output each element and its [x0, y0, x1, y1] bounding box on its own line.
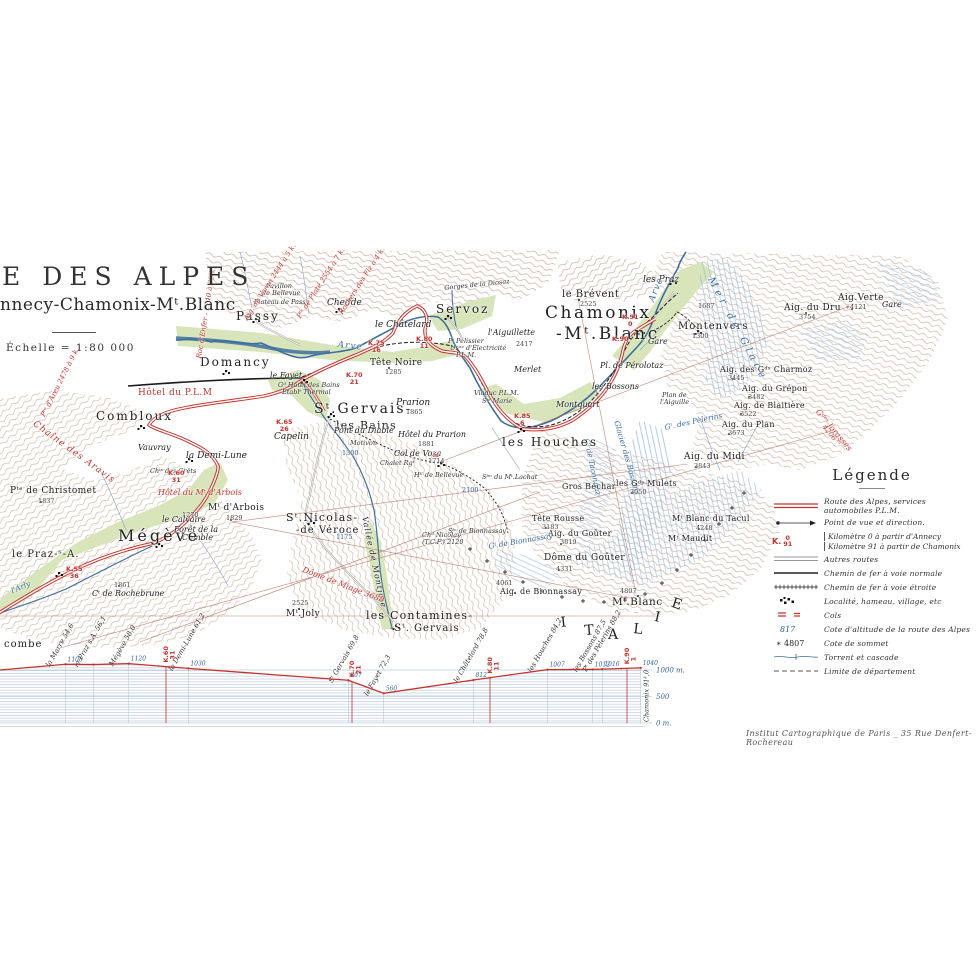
- legend-item: Chemin de fer à voie étroite: [772, 581, 972, 594]
- summit-dot: [578, 299, 580, 301]
- village-marker: [306, 381, 308, 383]
- summit-dot: [732, 378, 734, 380]
- village-marker: [308, 523, 310, 525]
- credit-line: Institut Cartographique de Paris _ 35 Ru…: [746, 729, 980, 747]
- legend-panel: Légende Route des Alpes, services automo…: [772, 466, 972, 679]
- map-title: E DES ALPES: [2, 264, 255, 290]
- village-marker: [140, 425, 142, 427]
- legend-road-symbol: [772, 553, 824, 565]
- village-marker: [700, 332, 702, 334]
- summit-dot: [748, 396, 750, 398]
- village-marker: [638, 333, 640, 335]
- village-marker: [450, 317, 452, 319]
- border-cross: [560, 595, 564, 599]
- village-marker: [445, 318, 447, 320]
- legend-item: Route des Alpes, services automobiles P.…: [772, 497, 972, 515]
- legend-item: Torrent et cascade: [772, 651, 972, 664]
- legend-label: Point de vue et direction.: [824, 518, 925, 527]
- village-marker: [523, 430, 525, 432]
- legend-item: Point de vue et direction.: [772, 517, 972, 530]
- village-marker: [328, 416, 330, 418]
- profile-elevation-label: 1007: [550, 662, 565, 669]
- village-marker: [191, 460, 193, 462]
- legend-label: Localité, hameau, village, etc: [824, 597, 942, 606]
- legend-label: Chemin de fer à voie normale: [824, 569, 942, 578]
- village-marker: [670, 283, 672, 285]
- village-marker: [156, 546, 158, 548]
- village-marker: [303, 379, 305, 381]
- profile-axis-label: 1000 m.: [656, 667, 685, 675]
- legend-label: Torrent et cascade: [824, 653, 899, 662]
- village-marker: [675, 282, 677, 284]
- profile-point: [347, 679, 349, 681]
- summit-dot: [514, 592, 516, 594]
- legend-label: Kilomètre 91 à partir de Chamonix: [824, 542, 961, 551]
- legend-label: Cote d'altitude de la route des Alpes: [824, 625, 970, 634]
- legend-col-symbol: [772, 609, 824, 621]
- village-marker: [643, 332, 645, 334]
- legend-torrent-symbol: [772, 651, 824, 663]
- village-marker: [640, 330, 642, 332]
- border-cross: [581, 599, 585, 603]
- summit-dot: [728, 433, 730, 435]
- village-marker: [520, 428, 522, 430]
- map-scale: Échelle = 1:80 000: [6, 343, 135, 354]
- village-marker: [301, 382, 303, 384]
- village-marker: [395, 625, 397, 627]
- legend-title: Légende: [772, 466, 972, 484]
- profile-point: [597, 668, 599, 670]
- legend-label: Cols: [824, 611, 841, 620]
- village-marker: [225, 370, 227, 372]
- profile-km-label: K.6031: [162, 646, 177, 663]
- village-marker: [258, 320, 260, 322]
- village-marker: [255, 318, 257, 320]
- legend-item: 817Cote d'altitude de la route des Alpes: [772, 623, 972, 636]
- village-marker: [158, 543, 160, 545]
- village-marker: [398, 627, 400, 629]
- village-marker: [447, 315, 449, 317]
- profile-elevation-label: 1016: [604, 661, 619, 668]
- legend-alt-symbol: 817: [772, 625, 824, 634]
- legend-item: ∗ 4807Cote de sommet: [772, 637, 972, 650]
- profile-axis-label: 0 m.: [656, 720, 672, 728]
- summit-dot: [631, 492, 633, 494]
- summit-dot: [118, 585, 120, 587]
- legend-item: Limite de département: [772, 665, 972, 678]
- legend-label: Chemin de fer à voie étroite: [824, 583, 936, 592]
- legend-item: Localité, hameau, village, etc: [772, 595, 972, 608]
- legend-rail-symbol: [772, 567, 824, 579]
- legend-item: Autres routes: [772, 553, 972, 566]
- profile-area: [0, 664, 641, 723]
- profile-km-label: K.8011: [486, 657, 501, 674]
- profile-point: [92, 663, 94, 665]
- village-marker: [56, 575, 58, 577]
- profile-km-label: K.7021: [348, 660, 363, 677]
- profile-point: [268, 674, 270, 676]
- summit-dot: [388, 367, 390, 369]
- village-marker: [223, 373, 225, 375]
- village-marker: [228, 372, 230, 374]
- profile-point: [601, 668, 603, 670]
- summit-dot: [805, 312, 807, 314]
- profile-point: [592, 668, 594, 670]
- village-marker: [330, 413, 332, 415]
- summit-dot: [560, 543, 562, 545]
- legend-label: Autres routes: [824, 555, 878, 564]
- profile-elevation-label: 1040: [643, 660, 658, 667]
- map-subtitle: nnecy-Chamonix-Mᵗ.Blanc: [0, 297, 236, 315]
- village-marker: [58, 572, 60, 574]
- profile-point: [546, 669, 548, 671]
- profile-point: [472, 679, 474, 681]
- summit-dot: [545, 527, 547, 529]
- profile-point: [128, 663, 130, 665]
- village-marker: [518, 431, 520, 433]
- border-cross: [540, 589, 544, 593]
- legend-items: Route des Alpes, services automobiles P.…: [772, 497, 972, 678]
- profile-point: [621, 668, 623, 670]
- legend-label: Route des Alpes, services automobiles P.…: [824, 497, 972, 515]
- legend-label: Limite de département: [824, 667, 916, 676]
- legend-loc-symbol: [772, 595, 824, 607]
- summit-dot: [40, 501, 42, 503]
- profile-point: [569, 669, 571, 671]
- village-marker: [188, 458, 190, 460]
- summit-dot: [695, 466, 697, 468]
- village-marker: [695, 333, 697, 335]
- village-marker: [438, 465, 440, 467]
- village-marker: [338, 308, 340, 310]
- profile-point: [383, 692, 385, 694]
- profile-point: [640, 667, 642, 669]
- village-marker: [393, 628, 395, 630]
- legend-summit-symbol: ∗ 4807: [772, 639, 824, 648]
- summit-dot: [698, 528, 700, 530]
- summit-dot: [851, 308, 853, 310]
- profile-axis-label: 500: [656, 693, 670, 701]
- village-marker: [333, 415, 335, 417]
- legend-title-rule: [859, 488, 885, 489]
- summit-dot: [298, 608, 300, 610]
- summit-dot: [637, 595, 639, 597]
- legend-railn-symbol: [772, 581, 824, 593]
- village-marker: [186, 461, 188, 463]
- profile-point: [110, 663, 112, 665]
- legend-km-symbol: K.091: [772, 535, 824, 548]
- village-marker: [253, 321, 255, 323]
- profile-km-label: K.901: [623, 647, 638, 664]
- profile-point: [79, 664, 81, 666]
- village-marker: [313, 522, 315, 524]
- legend-item: Chemin de fer à voie normale: [772, 567, 972, 580]
- profile-point: [428, 686, 430, 688]
- legend-view-symbol: [772, 517, 824, 529]
- profile-point: [64, 663, 66, 665]
- profile-end-label: Chamonix 91ᵏ,0: [643, 670, 651, 722]
- profile-point: [158, 665, 160, 667]
- legend-label: Cote de sommet: [824, 639, 889, 648]
- summit-dot: [740, 413, 742, 415]
- legend-item: Cols: [772, 609, 972, 622]
- village-marker: [672, 280, 674, 282]
- profile-point: [365, 686, 367, 688]
- village-marker: [61, 574, 63, 576]
- legend-route-symbol: [772, 500, 824, 512]
- village-marker: [443, 464, 445, 466]
- village-marker: [310, 520, 312, 522]
- village-marker: [440, 462, 442, 464]
- summit-dot: [230, 519, 232, 521]
- village-marker: [697, 330, 699, 332]
- profile-point: [187, 667, 189, 669]
- title-rule: [52, 332, 96, 333]
- village-marker: [341, 310, 343, 312]
- summit-dot: [558, 569, 560, 571]
- legend-item: K.091Kilomètre 0 à partir d'AnnecyKilomè…: [772, 531, 972, 552]
- profile-elevation-label: 1120: [131, 656, 146, 663]
- village-marker: [336, 311, 338, 313]
- legend-label: Kilomètre 0 à partir d'Annecy: [824, 532, 961, 541]
- village-marker: [161, 545, 163, 547]
- map-sheet: 1000 m.5000 m.1108la Marre 54,6le Praz s…: [0, 0, 980, 980]
- village-marker: [143, 427, 145, 429]
- village-marker: [138, 428, 140, 430]
- legend-limit-symbol: [772, 665, 824, 677]
- profile-elevation-label: 1030: [190, 660, 205, 667]
- profile-point: [510, 674, 512, 676]
